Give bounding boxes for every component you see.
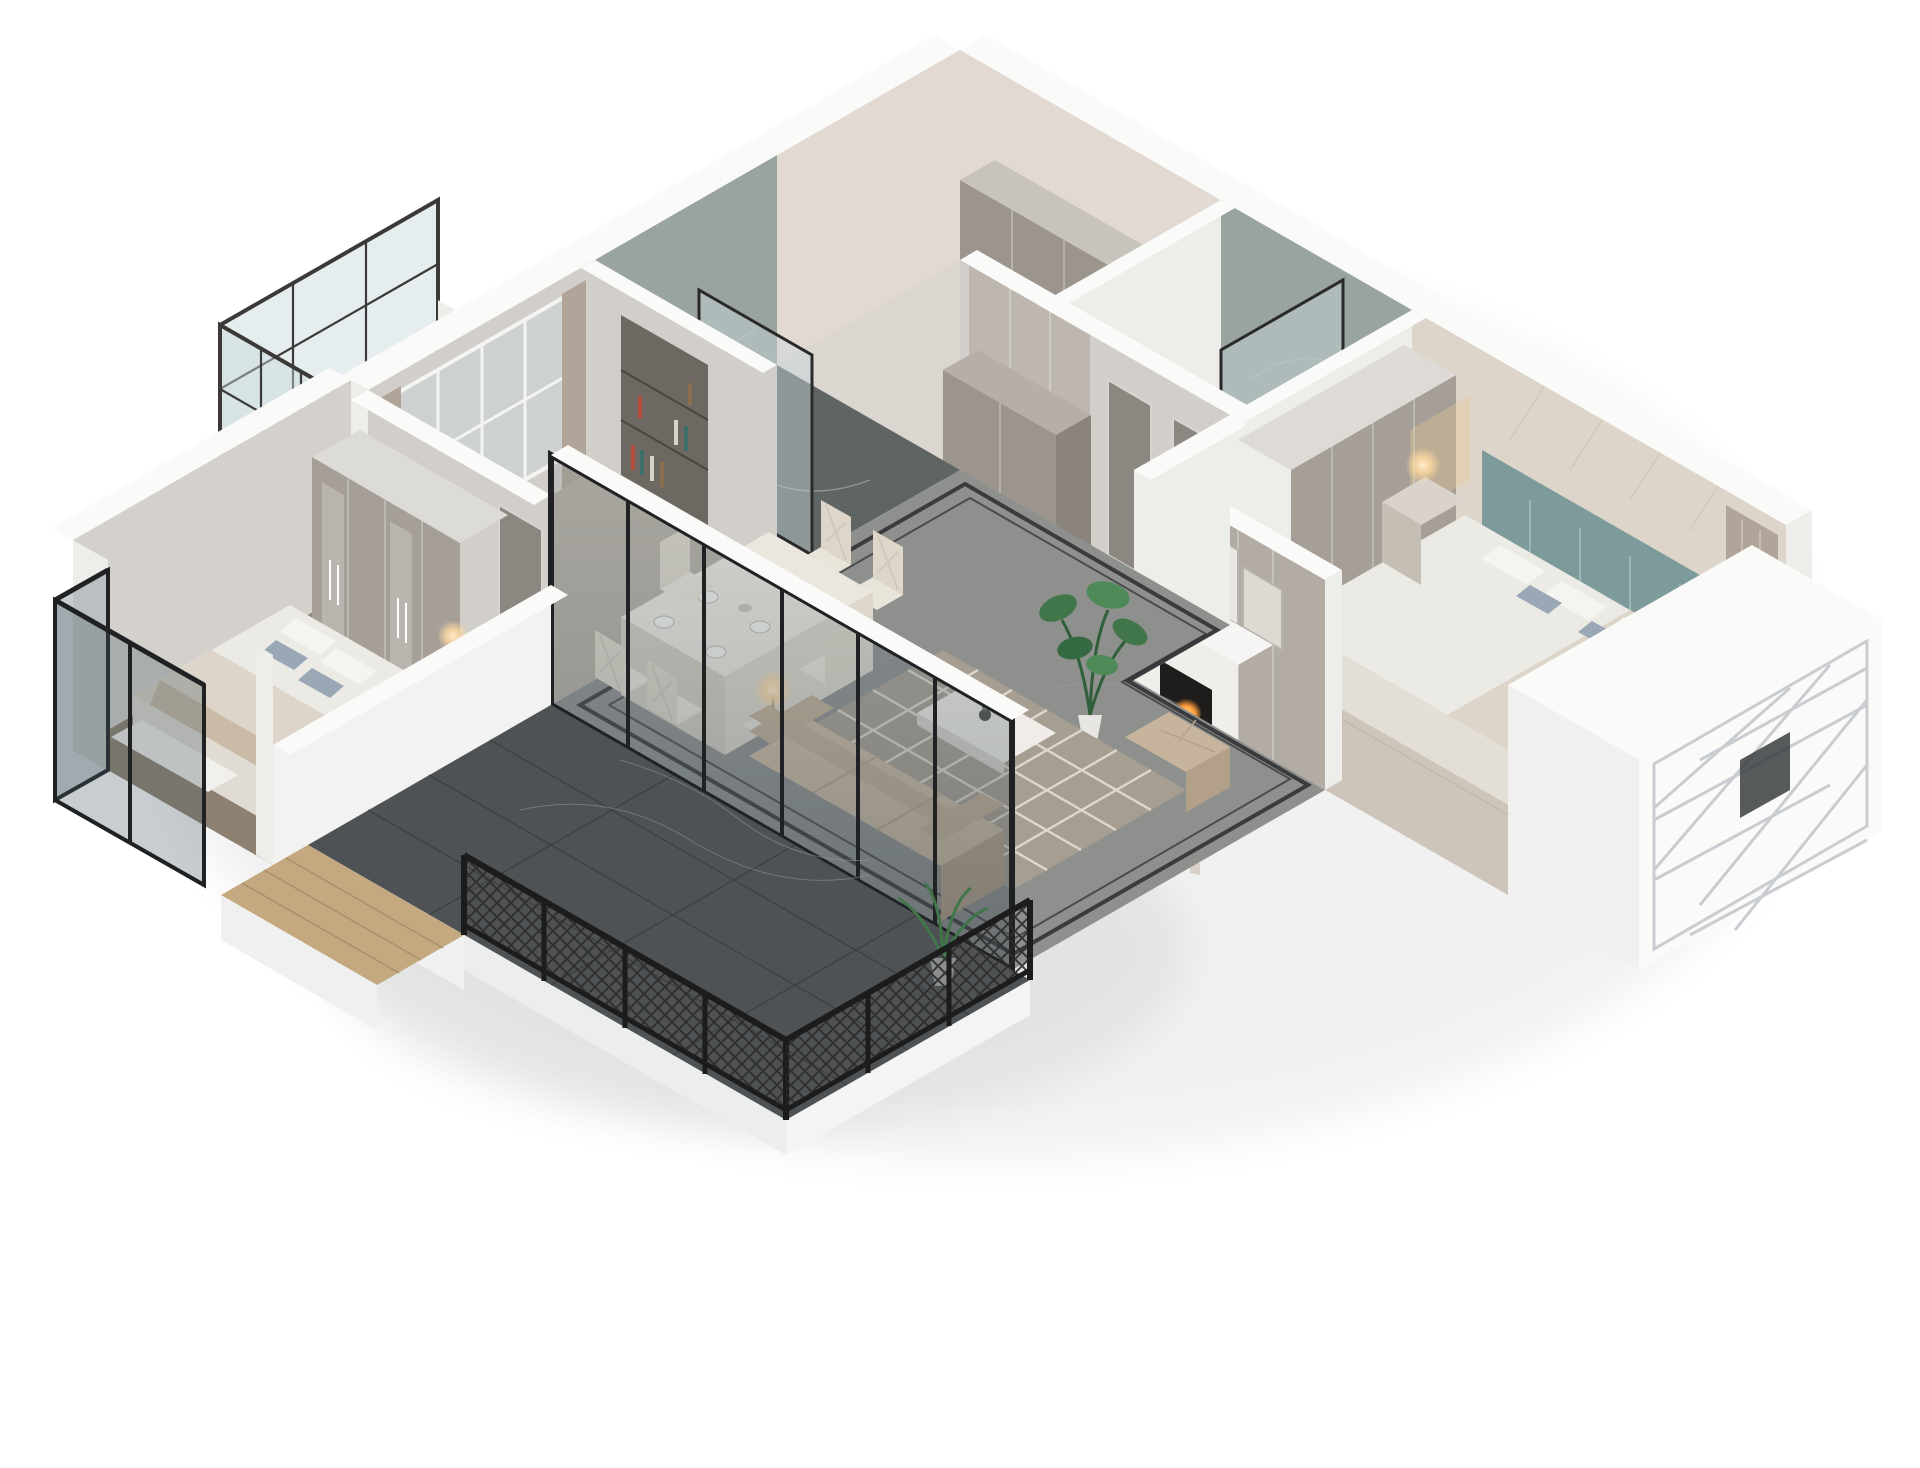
- wardrobe-glass-door: [390, 521, 412, 682]
- table-lamp-glow: [1405, 447, 1441, 483]
- wardrobe-glass-door: [322, 482, 344, 643]
- apartment-cutaway-render: [0, 0, 1920, 1468]
- render-canvas: [0, 0, 1920, 1468]
